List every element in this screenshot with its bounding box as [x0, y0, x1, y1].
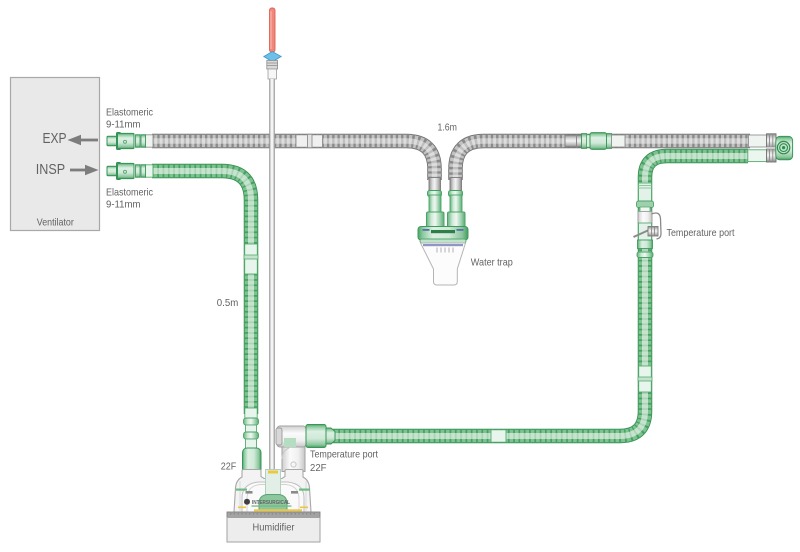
- svg-text:Ventilator: Ventilator: [37, 217, 74, 228]
- svg-text:0.5m: 0.5m: [217, 298, 239, 309]
- svg-text:Temperature port: Temperature port: [310, 449, 378, 460]
- svg-text:EXP: EXP: [43, 130, 67, 147]
- svg-text:Elastomeric: Elastomeric: [106, 107, 153, 118]
- svg-text:Elastomeric: Elastomeric: [106, 187, 153, 198]
- svg-text:INSP: INSP: [36, 161, 65, 178]
- svg-text:INTERSURGICAL: INTERSURGICAL: [252, 500, 291, 506]
- svg-text:9-11mm: 9-11mm: [106, 119, 141, 130]
- svg-text:Humidifier: Humidifier: [253, 523, 296, 534]
- svg-text:Temperature port: Temperature port: [667, 228, 735, 239]
- svg-text:Water trap: Water trap: [471, 258, 513, 269]
- svg-text:9-11mm: 9-11mm: [106, 199, 141, 210]
- svg-text:22F: 22F: [310, 463, 327, 474]
- svg-text:22F: 22F: [221, 462, 237, 473]
- svg-text:1.6m: 1.6m: [438, 123, 458, 134]
